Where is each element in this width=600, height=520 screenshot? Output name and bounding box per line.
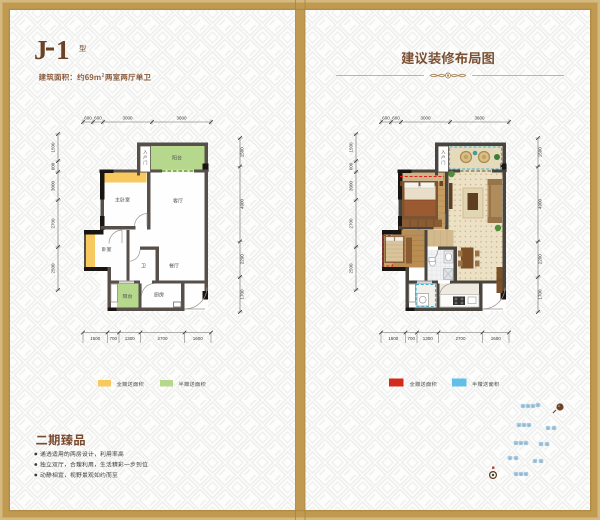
svg-text:2200: 2200 [538, 254, 543, 265]
svg-text:3600: 3600 [474, 116, 485, 121]
svg-text:1600: 1600 [491, 336, 502, 341]
svg-text:600: 600 [382, 116, 390, 121]
svg-text:1: 1 [56, 35, 70, 65]
svg-text:2700: 2700 [348, 218, 353, 229]
svg-text:3000: 3000 [50, 180, 55, 191]
svg-text:600: 600 [84, 116, 92, 121]
svg-text:3000: 3000 [348, 180, 353, 191]
svg-text:2500: 2500 [348, 263, 353, 274]
svg-text:4900: 4900 [240, 198, 245, 209]
svg-text:2700: 2700 [455, 336, 466, 341]
svg-text:1700: 1700 [538, 289, 543, 300]
svg-text:2200: 2200 [240, 254, 245, 265]
svg-text:1500: 1500 [348, 142, 353, 153]
svg-text:1600: 1600 [193, 336, 204, 341]
svg-text:600: 600 [348, 162, 353, 170]
svg-text:1500: 1500 [538, 147, 543, 158]
svg-text:700: 700 [407, 336, 415, 341]
svg-text:600: 600 [392, 116, 400, 121]
svg-text:3000: 3000 [122, 116, 133, 121]
svg-text:2500: 2500 [50, 263, 55, 274]
svg-text:3600: 3600 [176, 116, 187, 121]
svg-text:2700: 2700 [157, 336, 168, 341]
svg-text:1500: 1500 [240, 147, 245, 158]
svg-text:3000: 3000 [420, 116, 431, 121]
svg-text:J: J [34, 35, 48, 65]
svg-text:1300: 1300 [125, 336, 136, 341]
svg-text:600: 600 [50, 162, 55, 170]
svg-text:1700: 1700 [240, 289, 245, 300]
svg-text:4900: 4900 [538, 198, 543, 209]
svg-text:1500: 1500 [50, 142, 55, 153]
svg-text:1500: 1500 [388, 336, 399, 341]
svg-text:700: 700 [109, 336, 117, 341]
svg-text:600: 600 [94, 116, 102, 121]
svg-text:1500: 1500 [90, 336, 101, 341]
svg-text:1300: 1300 [423, 336, 434, 341]
svg-text:2700: 2700 [50, 218, 55, 229]
